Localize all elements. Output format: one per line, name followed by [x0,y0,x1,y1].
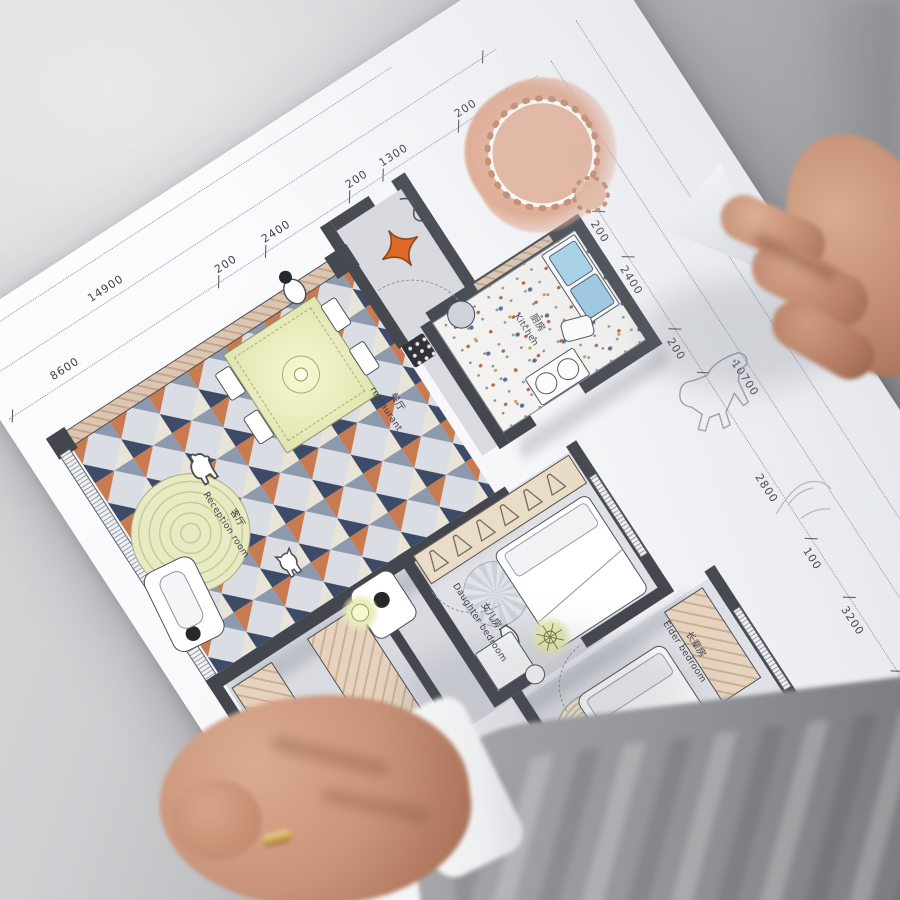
dim-tick [843,597,856,598]
right-hand [690,100,900,400]
dim-label: 100 [800,545,824,572]
tree-icon [450,61,635,246]
thumb-knuckle [172,780,262,860]
dim-label: 2400 [259,217,293,245]
dim-label: 3200 [838,604,866,638]
dim-label: 8600 [48,355,82,383]
dim-label: 14900 [85,272,126,305]
dim-tick [265,245,266,258]
dim-label: 1300 [376,141,410,169]
dim-tick [482,50,483,63]
dim-tick [805,538,818,539]
photo-of-hands-holding-floor-plan: 14900 8600 200 2400 200 1300 200 200 140… [0,0,900,900]
hand-sketch-scribble [767,451,841,535]
dim-tick [622,256,635,257]
left-arm-and-sleeve [120,660,900,900]
